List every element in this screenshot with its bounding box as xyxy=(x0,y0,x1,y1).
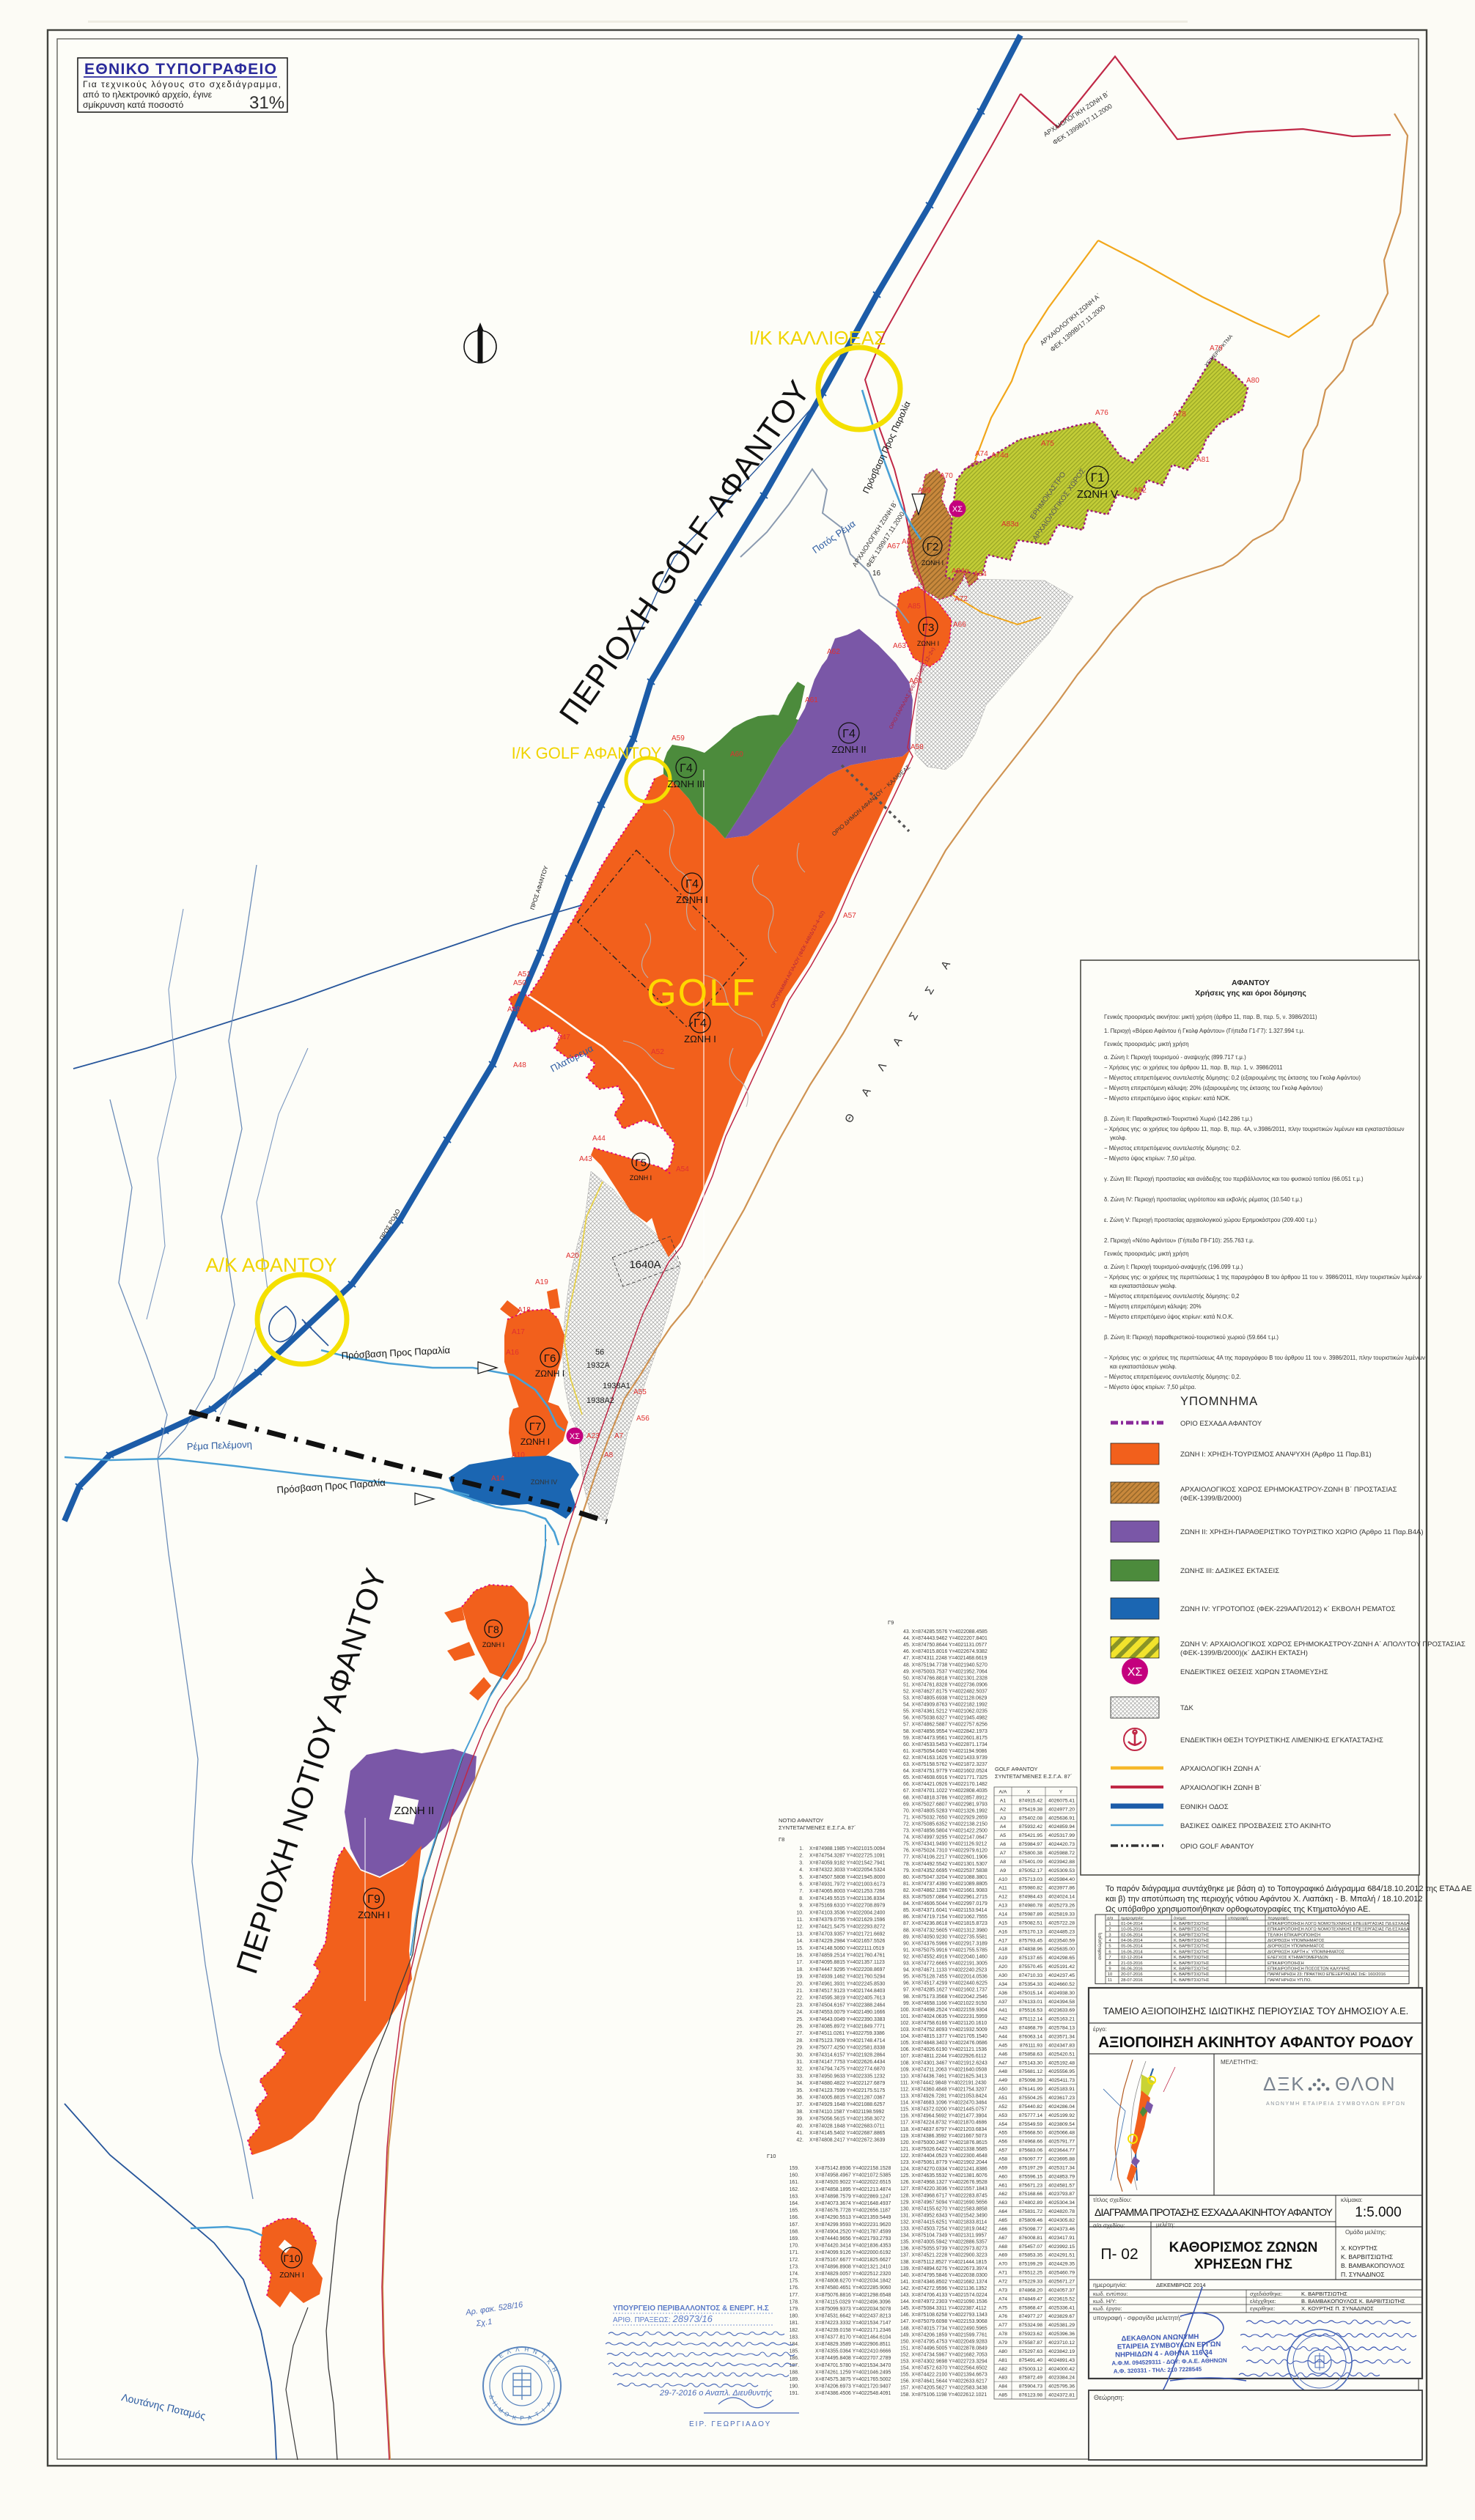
svg-text:ΔΙΟΡΘΩΣΗ ΥΠΟΜΝΗΜΑΤΟΣ: ΔΙΟΡΘΩΣΗ ΥΠΟΜΝΗΜΑΤΟΣ xyxy=(1268,1939,1325,1943)
svg-text:173.: 173. xyxy=(790,2264,799,2269)
svg-text:X=874904.2520 Y=4021787.4599: X=874904.2520 Y=4021787.4599 xyxy=(815,2229,891,2234)
svg-text:112. X=874360.4848 Y=4021754.3: 112. X=874360.4848 Y=4021754.3207 xyxy=(900,2088,987,2093)
svg-text:X=874386.4506 Y=4022548.4091: X=874386.4506 Y=4022548.4091 xyxy=(815,2391,891,2396)
svg-text:2: 2 xyxy=(1108,1928,1111,1932)
svg-text:Α13: Α13 xyxy=(998,1904,1007,1909)
svg-text:X=874958.4967 Y=4021072.5385: X=874958.4967 Y=4021072.5385 xyxy=(815,2173,891,2178)
svg-text:Κ. ΒΑΡΒΙΤΣΙΩΤΗΣ: Κ. ΒΑΡΒΙΤΣΙΩΤΗΣ xyxy=(1174,1945,1210,1949)
svg-text:25.: 25. xyxy=(796,2017,803,2022)
svg-text:ΕΠΙΚΑΙΡΟΠΟΙΗΣΗ ΛΟΓΩ ΝΟΜΟΤΕΧΝΙΚ: ΕΠΙΚΑΙΡΟΠΟΙΗΣΗ ΛΟΓΩ ΝΟΜΟΤΕΧΝΙΚΗΣ ΕΠΕΞΕΡΓ… xyxy=(1268,1928,1409,1932)
svg-text:875170.13: 875170.13 xyxy=(1019,1929,1042,1934)
svg-text:X=874896.8908 Y=4021321.2410: X=874896.8908 Y=4021321.2410 xyxy=(815,2264,891,2269)
svg-text:Α8: Α8 xyxy=(1000,1860,1007,1865)
svg-text:ΣΥΝΤΕΤΑΓΜΕΝΕΣ Ε.Σ.Γ.Α. 87΄: ΣΥΝΤΕΤΑΓΜΕΝΕΣ Ε.Σ.Γ.Α. 87΄ xyxy=(779,1824,856,1831)
svg-text:875987.89: 875987.89 xyxy=(1019,1912,1042,1917)
svg-text:X=874005.8815 Y=4021287.0367: X=874005.8815 Y=4021287.0367 xyxy=(809,2096,886,2101)
svg-text:02-06-2014: 02-06-2014 xyxy=(1121,1933,1143,1937)
svg-text:4023417.91: 4023417.91 xyxy=(1048,2236,1075,2241)
svg-text:γκολφ.: γκολφ. xyxy=(1110,1135,1127,1141)
svg-text:Α52: Α52 xyxy=(651,1048,664,1056)
svg-text:Α20: Α20 xyxy=(566,1252,579,1260)
svg-text:ΖΩΝΗ Ι: ΖΩΝΗ Ι xyxy=(521,1437,550,1447)
svg-text:Α44: Α44 xyxy=(998,2035,1007,2040)
svg-text:876123.98: 876123.98 xyxy=(1019,2393,1042,2398)
svg-text:4024298.65: 4024298.65 xyxy=(1048,1956,1075,1961)
svg-text:X=875167.6677 Y=4021825.6627: X=875167.6677 Y=4021825.6627 xyxy=(815,2258,891,2263)
svg-text:38.: 38. xyxy=(796,2110,803,2115)
svg-text:92. X=874552.4916 Y=4022040.14: 92. X=874552.4916 Y=4022040.1460 xyxy=(903,1955,987,1960)
svg-text:875354.33: 875354.33 xyxy=(1019,1982,1042,1987)
svg-text:Α47: Α47 xyxy=(998,2060,1007,2066)
svg-text:5: 5 xyxy=(1108,1945,1111,1949)
svg-text:Α9: Α9 xyxy=(1000,1868,1007,1874)
svg-text:Α50: Α50 xyxy=(513,979,526,987)
svg-text:Α80: Α80 xyxy=(1246,377,1259,385)
svg-text:β. Ζώνη ΙΙ: Περιοχή παραθεριστ: β. Ζώνη ΙΙ: Περιοχή παραθεριστικού-τουρι… xyxy=(1104,1334,1279,1341)
svg-text:876141.99: 876141.99 xyxy=(1019,2087,1042,2092)
svg-text:ΑΞΙΟΠΟΙΗΣΗ ΑΚΙΝΗΤΟΥ ΑΦΑΝΤΟΥ ΡΟ: ΑΞΙΟΠΟΙΗΣΗ ΑΚΙΝΗΤΟΥ ΑΦΑΝΤΟΥ ΡΟΔΟΥ xyxy=(1098,2034,1413,2051)
svg-text:189.: 189. xyxy=(790,2377,799,2382)
svg-text:138. X=875112.8527 Y=4021444.1: 138. X=875112.8527 Y=4021444.1815 xyxy=(900,2260,987,2265)
svg-text:874802.89: 874802.89 xyxy=(1019,2200,1042,2206)
svg-text:X=874504.6167 Y=4022388.2464: X=874504.6167 Y=4022388.2464 xyxy=(809,2003,886,2008)
svg-text:X=874988.1985 Y=4021015.0094: X=874988.1985 Y=4021015.0094 xyxy=(809,1846,886,1852)
svg-text:Α67: Α67 xyxy=(887,542,900,550)
svg-text:7.: 7. xyxy=(799,1889,803,1894)
svg-text:Α48: Α48 xyxy=(998,2069,1007,2074)
svg-text:ΔΕΚΕΜΒΡΙΟΣ 2014: ΔΕΚΕΜΒΡΙΟΣ 2014 xyxy=(1156,2282,1206,2288)
svg-text:Γ10: Γ10 xyxy=(767,2153,776,2159)
svg-text:176.: 176. xyxy=(790,2285,799,2291)
svg-text:Κ. ΒΑΡΒΙΤΣΙΩΤΗΣ: Κ. ΒΑΡΒΙΤΣΙΩΤΗΣ xyxy=(1301,2291,1347,2297)
svg-text:Α8: Α8 xyxy=(604,1451,614,1459)
svg-text:ΖΩΝΗ Ι: ΖΩΝΗ Ι xyxy=(684,1034,716,1045)
svg-text:Γενικός προορισμός: μικτή χρήσ: Γενικός προορισμός: μικτή χρήση xyxy=(1104,1250,1189,1257)
svg-text:ε. Ζώνη V: Περιοχή προστασίας: ε. Ζώνη V: Περιοχή προστασίας αρχαιολογι… xyxy=(1104,1217,1317,1223)
svg-text:Α56: Α56 xyxy=(998,2140,1007,2145)
svg-text:Α71: Α71 xyxy=(998,2271,1007,2276)
svg-text:Α43: Α43 xyxy=(579,1155,592,1163)
svg-text:Ι/Κ ΚΑΛΛΙΘΕΑΣ: Ι/Κ ΚΑΛΛΙΘΕΑΣ xyxy=(749,327,886,349)
svg-text:Α41: Α41 xyxy=(998,2008,1007,2014)
svg-text:ΕΛΕΓΧΟΣ ΚΤΗΜΑΤΟΜΕΡΙΔΩΝ: ΕΛΕΓΧΟΣ ΚΤΗΜΑΤΟΜΕΡΙΔΩΝ xyxy=(1268,1956,1328,1960)
svg-text:875015.14: 875015.14 xyxy=(1019,1991,1042,1996)
svg-text:ΤΕΛΙΚΗ ΕΠΙΚΑΙΡΟΠΟΙΗΣΗ: ΤΕΛΙΚΗ ΕΠΙΚΑΙΡΟΠΟΙΗΣΗ xyxy=(1268,1933,1320,1937)
svg-text:4024420.73: 4024420.73 xyxy=(1048,1842,1075,1847)
svg-text:X=874115.0329 Y=4022496.3096: X=874115.0329 Y=4022496.3096 xyxy=(815,2299,891,2305)
svg-text:Α51: Α51 xyxy=(998,2096,1007,2101)
svg-text:Α63: Α63 xyxy=(998,2200,1007,2206)
svg-text:X=875169.6310 Y=4022708.8979: X=875169.6310 Y=4022708.8979 xyxy=(809,1904,886,1909)
svg-text:Α83: Α83 xyxy=(998,2376,1007,2381)
svg-text:1.: 1. xyxy=(799,1846,803,1852)
svg-text:ΧΣ: ΧΣ xyxy=(570,1432,580,1441)
svg-text:61. X=875054.6400 Y=4021194.90: 61. X=875054.6400 Y=4021194.9086 xyxy=(903,1749,987,1754)
svg-text:44. X=874443.9462 Y=4022207.84: 44. X=874443.9462 Y=4022207.8401 xyxy=(903,1636,987,1641)
svg-text:4025199.92: 4025199.92 xyxy=(1048,2113,1075,2118)
svg-text:Α15: Α15 xyxy=(998,1920,1007,1926)
svg-text:Γ10: Γ10 xyxy=(283,2252,300,2264)
svg-text:− Χρήσεις γης: οι χρήσεις του: − Χρήσεις γης: οι χρήσεις του άρθρου 11,… xyxy=(1104,1126,1405,1132)
svg-text:4025273.26: 4025273.26 xyxy=(1048,1904,1075,1909)
svg-text:182.: 182. xyxy=(790,2328,799,2333)
svg-text:82. X=874862.1286 Y=4021661.90: 82. X=874862.1286 Y=4021661.9083 xyxy=(903,1888,987,1893)
svg-text:16: 16 xyxy=(872,570,881,578)
svg-text:4025396.36: 4025396.36 xyxy=(1048,2332,1075,2337)
svg-text:X=874059.9182 Y=4021542.7941: X=874059.9182 Y=4021542.7941 xyxy=(809,1860,886,1865)
svg-text:4023992.15: 4023992.15 xyxy=(1048,2244,1075,2250)
svg-text:83. X=875057.0864 Y=4022961.27: 83. X=875057.0864 Y=4022961.2715 xyxy=(903,1895,987,1900)
svg-text:1938Α2: 1938Α2 xyxy=(586,1396,614,1405)
svg-text:188.: 188. xyxy=(790,2370,799,2375)
svg-text:155. X=874422.2100 Y=4021394.6: 155. X=874422.2100 Y=4021394.6673 xyxy=(900,2373,987,2378)
svg-text:4024891.43: 4024891.43 xyxy=(1048,2358,1075,2363)
svg-text:Α/Κ ΑΦΑΝΤΟΥ: Α/Κ ΑΦΑΝΤΟΥ xyxy=(205,1254,336,1276)
svg-text:ΑΝΩΝΥΜΗ ΕΤΑΙΡΕΙΑ ΣΥΜΒΟΥΛΩΝ: ΑΝΩΝΥΜΗ ΕΤΑΙΡΕΙΑ ΣΥΜΒΟΥΛΩΝ ΕΡΓΩΝ xyxy=(1266,2101,1406,2107)
svg-text:75. X=874341.9490 Y=4021126.92: 75. X=874341.9490 Y=4021126.9212 xyxy=(903,1842,987,1847)
svg-text:ελέγχθηκε:: ελέγχθηκε: xyxy=(1250,2298,1276,2305)
svg-text:874710.33: 874710.33 xyxy=(1019,1973,1042,1978)
svg-text:50. X=874766.8818 Y=4021301.23: 50. X=874766.8818 Y=4021301.2328 xyxy=(903,1676,987,1681)
svg-text:15.: 15. xyxy=(796,1946,803,1951)
svg-text:174.: 174. xyxy=(790,2272,799,2277)
svg-text:Κ. ΒΑΡΒΙΤΣΙΩΤΗΣ: Κ. ΒΑΡΒΙΤΣΙΩΤΗΣ xyxy=(1174,1967,1210,1972)
svg-text:Α78: Α78 xyxy=(998,2332,1007,2337)
svg-text:ΖΩΝΗ ΙV: ΖΩΝΗ ΙV xyxy=(531,1478,557,1486)
svg-text:7: 7 xyxy=(1108,1956,1111,1960)
svg-text:Α54: Α54 xyxy=(676,1165,689,1174)
svg-text:Κ. ΒΑΡΒΙΤΣΙΩΤΗΣ: Κ. ΒΑΡΒΙΤΣΙΩΤΗΣ xyxy=(1174,1922,1210,1926)
svg-text:115. X=874372.0200 Y=4021445.0: 115. X=874372.0200 Y=4021445.0757 xyxy=(900,2107,987,2112)
svg-text:108. X=874301.3467 Y=4021912.6: 108. X=874301.3467 Y=4021912.6243 xyxy=(900,2060,987,2066)
svg-text:ΖΩΝΗ Ι: ΖΩΝΗ Ι xyxy=(358,1909,390,1920)
svg-text:(ΦΕΚ-1399/Β/2000)(κ΄ ΔΑΣΙΚΗ ΕΚ: (ΦΕΚ-1399/Β/2000)(κ΄ ΔΑΣΙΚΗ ΕΚΤΑΣΗ) xyxy=(1180,1649,1308,1657)
svg-text:α. Ζώνη Ι: Περιοχή τουρισμού-α: α. Ζώνη Ι: Περιοχή τουρισμού-αναψυχής (1… xyxy=(1104,1264,1243,1270)
svg-text:167.: 167. xyxy=(790,2222,799,2228)
svg-text:Α52: Α52 xyxy=(998,2104,1007,2110)
svg-text:111. X=874442.9848 Y=4022191.2: 111. X=874442.9848 Y=4022191.2430 xyxy=(900,2080,987,2085)
svg-text:29.: 29. xyxy=(796,2046,803,2051)
svg-text:4023384.24: 4023384.24 xyxy=(1048,2376,1075,2381)
svg-text:4025183.91: 4025183.91 xyxy=(1048,2087,1075,2092)
svg-text:875793.45: 875793.45 xyxy=(1019,1938,1042,1943)
svg-text:4025411.73: 4025411.73 xyxy=(1049,2078,1075,2083)
svg-text:4024372.81: 4024372.81 xyxy=(1048,2393,1075,2398)
svg-text:78. X=874492.5542 Y=4021301.53: 78. X=874492.5542 Y=4021301.5307 xyxy=(903,1862,987,1867)
svg-text:Γ5: Γ5 xyxy=(635,1157,647,1168)
svg-text:190.: 190. xyxy=(790,2384,799,2390)
svg-text:Ρέμα Πελέμονη: Ρέμα Πελέμονη xyxy=(187,1439,252,1452)
svg-text:Γ7: Γ7 xyxy=(529,1421,542,1433)
svg-text:2.: 2. xyxy=(799,1854,803,1859)
svg-text:71. X=875032.7650 Y=4022929.26: 71. X=875032.7650 Y=4022929.2659 xyxy=(903,1815,987,1820)
svg-text:4025795.36: 4025795.36 xyxy=(1048,2384,1075,2390)
svg-text:Α1: Α1 xyxy=(1000,1798,1007,1803)
svg-text:X=874073.3674 Y=4021648.4937: X=874073.3674 Y=4021648.4937 xyxy=(815,2201,891,2206)
svg-text:875549.59: 875549.59 xyxy=(1019,2122,1042,2127)
svg-text:X=874206.6973 Y=4021720.9407: X=874206.6973 Y=4021720.9407 xyxy=(815,2384,891,2390)
svg-text:1. Περιοχή «Βόρειο Αφάντου ή Γ: 1. Περιοχή «Βόρειο Αφάντου ή Γκολφ Αφάντ… xyxy=(1104,1028,1304,1034)
svg-text:Α65: Α65 xyxy=(998,2218,1007,2223)
svg-text:X=874314.6157 Y=4021928.2864: X=874314.6157 Y=4021928.2864 xyxy=(809,2052,886,2057)
svg-text:Α74α: Α74α xyxy=(991,452,1009,460)
svg-text:55. X=874361.5212 Y=4021062.02: 55. X=874361.5212 Y=4021062.0235 xyxy=(903,1709,987,1714)
svg-text:142. X=874272.9596 Y=4021136.1: 142. X=874272.9596 Y=4021136.1352 xyxy=(900,2286,987,2291)
svg-text:α. Ζώνη Ι: Περιοχή τουρισμού -: α. Ζώνη Ι: Περιοχή τουρισμού - αναψυχής … xyxy=(1104,1054,1246,1061)
svg-text:Α12: Α12 xyxy=(998,1895,1007,1900)
svg-text:110. X=874436.7461 Y=4021625.3: 110. X=874436.7461 Y=4021625.3413 xyxy=(900,2074,987,2079)
svg-text:64. X=874751.9779 Y=4021602.05: 64. X=874751.9779 Y=4021602.0524 xyxy=(903,1769,987,1774)
svg-text:876008.81: 876008.81 xyxy=(1019,2236,1042,2241)
svg-text:154. X=874572.6370 Y=4022564.6: 154. X=874572.6370 Y=4022564.6502 xyxy=(900,2366,987,2371)
svg-text:X=874531.6642 Y=4022437.8213: X=874531.6642 Y=4022437.8213 xyxy=(815,2314,891,2319)
svg-text:114. X=874683.1096 Y=4022470.3: 114. X=874683.1096 Y=4022470.3464 xyxy=(900,2101,987,2106)
svg-text:137. X=874521.2228 Y=4022900.3: 137. X=874521.2228 Y=4022900.3223 xyxy=(900,2253,987,2258)
svg-text:4023644.77: 4023644.77 xyxy=(1048,2148,1075,2154)
svg-text:875137.65: 875137.65 xyxy=(1019,1956,1042,1961)
svg-text:874849.47: 874849.47 xyxy=(1019,2296,1042,2302)
svg-text:1640Α: 1640Α xyxy=(629,1259,661,1271)
svg-text:874915.42: 874915.42 xyxy=(1019,1798,1042,1803)
svg-text:68. X=874818.3786 Y=4022857.89: 68. X=874818.3786 Y=4022857.8912 xyxy=(903,1795,987,1800)
svg-text:124. X=874270.0334 Y=4021241.8: 124. X=874270.0334 Y=4021241.8386 xyxy=(900,2167,987,2172)
svg-text:118. X=874837.6797 Y=4021203.6: 118. X=874837.6797 Y=4021203.6834 xyxy=(900,2127,987,2132)
svg-text:4024000.42: 4024000.42 xyxy=(1048,2367,1075,2372)
svg-text:875003.12: 875003.12 xyxy=(1019,2367,1042,2372)
svg-text:γ. Ζώνη ΙΙΙ: Περιοχή προστασία: γ. Ζώνη ΙΙΙ: Περιοχή προστασίας και ανάδ… xyxy=(1104,1176,1364,1182)
svg-text:Α72: Α72 xyxy=(998,2280,1007,2285)
svg-text:4024286.04: 4024286.04 xyxy=(1048,2104,1075,2110)
svg-text:ΜΕΛΕΤΗΤΗΣ:: ΜΕΛΕΤΗΤΗΣ: xyxy=(1221,2059,1258,2066)
svg-text:Β. ΒΑΜΒΑΚΟΠΟΥΛΟΣ Κ. ΒΑΡΒΙΤΣΙΩ: Β. ΒΑΜΒΑΚΟΠΟΥΛΟΣ Κ. ΒΑΡΒΙΤΣΙΩΤΗΣ xyxy=(1301,2298,1405,2305)
svg-text:ΚΑΘΟΡΙΣΜΟΣ ΖΩΝΩΝ: ΚΑΘΟΡΙΣΜΟΣ ΖΩΝΩΝ xyxy=(1169,2240,1318,2255)
svg-text:Α6: Α6 xyxy=(1000,1842,1007,1847)
svg-text:X=874829.3589 Y=4022906.8511: X=874829.3589 Y=4022906.8511 xyxy=(815,2342,891,2347)
svg-text:4024305.82: 4024305.82 xyxy=(1048,2218,1075,2223)
svg-text:Γ4: Γ4 xyxy=(694,1017,707,1030)
svg-text:Α10: Α10 xyxy=(998,1877,1007,1882)
svg-text:ΠΑΡΑΤΗΡΗΣΗ ΥΠ.ΠΟ.: ΠΑΡΑΤΗΡΗΣΗ ΥΠ.ΠΟ. xyxy=(1268,1978,1312,1983)
svg-text:ΒΑΣΙΚΕΣ ΟΔΙΚΕΣ ΠΡΟΣΒΑΣΕΙΣ ΣΤΟ: ΒΑΣΙΚΕΣ ΟΔΙΚΕΣ ΠΡΟΣΒΑΣΕΙΣ ΣΤΟ ΑΚΙΝΗΤΟ xyxy=(1180,1822,1331,1830)
svg-text:Γ8: Γ8 xyxy=(488,1624,499,1635)
svg-text:Α84: Α84 xyxy=(998,2384,1007,2390)
svg-text:Α83α: Α83α xyxy=(1001,520,1019,528)
svg-text:22.: 22. xyxy=(796,1996,803,2001)
svg-text:− Χρήσεις γης: οι χρήσεις του: − Χρήσεις γης: οι χρήσεις του άρθρου 11,… xyxy=(1104,1064,1283,1071)
svg-text:Α55: Α55 xyxy=(633,1388,647,1396)
svg-text:28.: 28. xyxy=(796,2038,803,2044)
svg-text:4023571.34: 4023571.34 xyxy=(1048,2035,1075,2040)
svg-text:8.: 8. xyxy=(799,1896,803,1901)
svg-text:20-07-2016: 20-07-2016 xyxy=(1121,1972,1143,1977)
svg-text:και εγκαταστάσεων γκολφ.: και εγκαταστάσεων γκολφ. xyxy=(1110,1363,1177,1370)
svg-text:5.: 5. xyxy=(799,1875,803,1880)
svg-text:X=874355.0364 Y=4022410.6666: X=874355.0364 Y=4022410.6666 xyxy=(815,2349,891,2354)
svg-text:11.: 11. xyxy=(797,1917,803,1923)
svg-text:− Μέγιστο ύψος κτιρίων: 7,50: − Μέγιστο ύψος κτιρίων: 7,50 μέτρα. xyxy=(1104,1155,1196,1162)
svg-text:Α81: Α81 xyxy=(1196,456,1210,464)
svg-text:31%: 31% xyxy=(249,93,284,113)
svg-text:4025317.99: 4025317.99 xyxy=(1048,1833,1075,1838)
svg-text:X=874929.1648 Y=4021088.6257: X=874929.1648 Y=4021088.6257 xyxy=(809,2102,886,2107)
svg-text:875671.23: 875671.23 xyxy=(1019,2183,1042,2188)
svg-text:− Μέγιστος επιτρεπόμενος συντ: − Μέγιστος επιτρεπόμενος συντελεστής δόμ… xyxy=(1104,1293,1239,1300)
svg-text:Α18: Α18 xyxy=(998,1947,1007,1952)
svg-text:Α59: Α59 xyxy=(672,734,685,743)
svg-text:6: 6 xyxy=(1108,1950,1111,1954)
svg-text:62. X=874163.1626 Y=4021433.97: 62. X=874163.1626 Y=4021433.9739 xyxy=(903,1755,987,1761)
svg-text:8: 8 xyxy=(1108,1961,1111,1966)
svg-text:52. X=874627.8175 Y=4022482.50: 52. X=874627.8175 Y=4022482.5037 xyxy=(903,1690,987,1695)
svg-text:28-07-2016: 28-07-2016 xyxy=(1121,1978,1143,1983)
svg-text:875401.09: 875401.09 xyxy=(1019,1860,1042,1865)
svg-text:171.: 171. xyxy=(790,2250,799,2255)
svg-text:ΕΝΔΕΙΚΤΙΚΕΣ ΘΕΣΕΙΣ ΧΩΡΩΝ ΣΤΑΘΜ: ΕΝΔΕΙΚΤΙΚΕΣ ΘΕΣΕΙΣ ΧΩΡΩΝ ΣΤΑΘΜΕΥΣΗΣ xyxy=(1180,1668,1328,1676)
svg-text:06-06-2016: 06-06-2016 xyxy=(1121,1967,1143,1972)
svg-text:4024660.52: 4024660.52 xyxy=(1048,1982,1075,1987)
svg-text:β. Ζώνη ΙΙ: Παραθεριστικό-Τουρ: β. Ζώνη ΙΙ: Παραθεριστικό-Τουριστικό Χωρ… xyxy=(1104,1116,1253,1122)
svg-text:172.: 172. xyxy=(790,2258,799,2263)
svg-text:Α51: Α51 xyxy=(518,970,531,979)
svg-text:ΥΠΟΜΝΗΜΑ: ΥΠΟΜΝΗΜΑ xyxy=(1180,1395,1258,1408)
svg-text:4024373.46: 4024373.46 xyxy=(1048,2227,1075,2232)
svg-text:4025336.41: 4025336.41 xyxy=(1048,2305,1075,2310)
svg-text:875858.63: 875858.63 xyxy=(1019,2052,1042,2057)
svg-text:99. X=874658.1166 Y=4021022.91: 99. X=874658.1166 Y=4021022.9150 xyxy=(903,2001,987,2006)
svg-text:Α62: Α62 xyxy=(827,648,840,656)
svg-text:Α63: Α63 xyxy=(893,642,906,650)
svg-text:874868.20: 874868.20 xyxy=(1019,2288,1042,2293)
svg-text:875853.35: 875853.35 xyxy=(1019,2253,1042,2258)
svg-text:169.: 169. xyxy=(790,2236,799,2241)
svg-text:69. X=875027.6807 Y=4022981.97: 69. X=875027.6807 Y=4022981.9793 xyxy=(903,1802,987,1807)
svg-text:4025819.33: 4025819.33 xyxy=(1048,1912,1075,1917)
svg-text:20.: 20. xyxy=(796,1981,803,1986)
svg-text:X=874898.7579 Y=4022869.1247: X=874898.7579 Y=4022869.1247 xyxy=(815,2194,891,2199)
svg-text:ΔΙΑΓΡΑΜΜΑ ΠΡΟΤΑΣΗΣ ΕΣΧΑΔΑ ΑΚΙΝ: ΔΙΑΓΡΑΜΜΑ ΠΡΟΤΑΣΗΣ ΕΣΧΑΔΑ ΑΚΙΝΗΤΟΥ ΑΦΑΝΤ… xyxy=(1095,2206,1334,2218)
svg-text:Υ: Υ xyxy=(1059,1790,1063,1795)
svg-text:94. X=874671.1133 Y=4022240.25: 94. X=874671.1133 Y=4022240.2523 xyxy=(903,1968,987,1973)
svg-text:Α66: Α66 xyxy=(953,621,966,629)
svg-text:135. X=874005.5942 Y=4022886.5: 135. X=874005.5942 Y=4022886.5357 xyxy=(900,2240,987,2245)
svg-text:Α19: Α19 xyxy=(998,1956,1007,1961)
svg-text:875872.49: 875872.49 xyxy=(1019,2376,1042,2381)
svg-text:ΑΡΧΑΙΟΛΟΓΙΚΟΣ ΧΩΡΟΣ ΕΡΗΜΟΚΑΣΤΡ: ΑΡΧΑΙΟΛΟΓΙΚΟΣ ΧΩΡΟΣ ΕΡΗΜΟΚΑΣΤΡΟΥ-ΖΩΝΗ Β΄… xyxy=(1180,1486,1397,1494)
svg-text:875904.73: 875904.73 xyxy=(1019,2384,1042,2390)
svg-text:X=874931.7972 Y=4021003.6173: X=874931.7972 Y=4021003.6173 xyxy=(809,1882,886,1887)
svg-text:ΖΩΝΗΣ ΙΙΙ: ΔΑΣΙΚΕΣ ΕΚΤΑΣΕΙΣ: ΖΩΝΗΣ ΙΙΙ: ΔΑΣΙΚΕΣ ΕΚΤΑΣΕΙΣ xyxy=(1180,1567,1279,1575)
svg-text:874868.79: 874868.79 xyxy=(1019,2026,1042,2031)
svg-text:875596.15: 875596.15 xyxy=(1019,2174,1042,2179)
svg-text:Π. ΣΥΝΑΔΙΝΟΣ: Π. ΣΥΝΑΔΙΝΟΣ xyxy=(1341,2271,1385,2278)
svg-text:Α60: Α60 xyxy=(998,2174,1007,2179)
svg-text:102. X=874758.6166 Y=4021120.1: 102. X=874758.6166 Y=4021120.1610 xyxy=(900,2021,987,2026)
svg-text:143. X=874706.4133 Y=4021574.0: 143. X=874706.4133 Y=4021574.0224 xyxy=(900,2293,987,2298)
svg-text:Χ. ΚΟΥΡΤΗΣ: Χ. ΚΟΥΡΤΗΣ xyxy=(1341,2244,1377,2252)
svg-text:X=874880.4822 Y=4022127.6879: X=874880.4822 Y=4022127.6879 xyxy=(809,2081,886,2086)
svg-text:X=874939.1462 Y=4021760.5294: X=874939.1462 Y=4021760.5294 xyxy=(809,1975,886,1980)
svg-text:60. X=874533.5453 Y=4022871.17: 60. X=874533.5453 Y=4022871.1734 xyxy=(903,1742,987,1747)
svg-text:X=874858.1895 Y=4021213.4874: X=874858.1895 Y=4021213.4874 xyxy=(815,2187,891,2192)
svg-text:875713.03: 875713.03 xyxy=(1019,1877,1042,1882)
svg-text:και β) την αποτύπωση της περιο: και β) την αποτύπωση της περιοχής νότιου… xyxy=(1106,1895,1422,1904)
svg-text:4023617.23: 4023617.23 xyxy=(1048,2096,1075,2101)
svg-text:Α37: Α37 xyxy=(998,2000,1007,2005)
svg-text:875419.38: 875419.38 xyxy=(1019,1807,1042,1812)
svg-text:875868.47: 875868.47 xyxy=(1019,2305,1042,2310)
svg-text:ΧΣ: ΧΣ xyxy=(1128,1666,1143,1679)
svg-text:X=874421.5475 Y=4022293.8272: X=874421.5475 Y=4022293.8272 xyxy=(809,1925,886,1930)
svg-text:− Μέγιστο επιτρεπόμενο ύψος κ: − Μέγιστο επιτρεπόμενο ύψος κτιρίων: κατ… xyxy=(1104,1095,1231,1102)
svg-text:10: 10 xyxy=(1108,1972,1112,1977)
svg-text:144. X=874972.2303 Y=4021090.1: 144. X=874972.2303 Y=4021090.1536 xyxy=(900,2299,987,2305)
svg-text:4025309.53: 4025309.53 xyxy=(1048,1868,1075,1874)
svg-text:X=874595.3819 Y=4022405.7613: X=874595.3819 Y=4022405.7613 xyxy=(809,1996,886,2001)
svg-text:170.: 170. xyxy=(790,2244,799,2249)
svg-text:X=874085.8972 Y=4021849.7771: X=874085.8972 Y=4021849.7771 xyxy=(809,2025,886,2030)
svg-text:876133.01: 876133.01 xyxy=(1019,2000,1042,2005)
svg-text:Α74: Α74 xyxy=(975,450,988,458)
svg-text:34.: 34. xyxy=(796,2081,803,2086)
svg-text:Α50: Α50 xyxy=(998,2087,1007,2092)
svg-text:Α81: Α81 xyxy=(998,2358,1007,2363)
svg-text:59. X=874473.9561 Y=4022601.81: 59. X=874473.9561 Y=4022601.8175 xyxy=(903,1736,987,1741)
svg-text:875440.82: 875440.82 xyxy=(1019,2104,1042,2110)
svg-text:66. X=874421.0926 Y=4022170.14: 66. X=874421.0926 Y=4022170.1482 xyxy=(903,1782,987,1787)
svg-text:162.: 162. xyxy=(790,2187,799,2192)
svg-text:875199.29: 875199.29 xyxy=(1019,2262,1042,2267)
svg-text:180.: 180. xyxy=(790,2314,799,2319)
svg-text:Α30: Α30 xyxy=(998,1973,1007,1978)
svg-text:70. X=874805.5283 Y=4021326.19: 70. X=874805.5283 Y=4021326.1992 xyxy=(903,1808,987,1813)
svg-text:153. X=874302.9698 Y=4022723.3: 153. X=874302.9698 Y=4022723.3294 xyxy=(900,2359,987,2365)
svg-text:01-04-2014: 01-04-2014 xyxy=(1121,1922,1143,1926)
svg-text:875831.72: 875831.72 xyxy=(1019,2209,1042,2214)
svg-text:147. X=875079.6098 Y=4022153.9: 147. X=875079.6098 Y=4022153.9068 xyxy=(900,2319,987,2324)
svg-text:X=874095.8815 Y=4021357.1123: X=874095.8815 Y=4021357.1123 xyxy=(809,1960,885,1965)
svg-text:Α45: Α45 xyxy=(998,2043,1007,2048)
svg-text:40.: 40. xyxy=(796,2123,803,2129)
svg-text:X=874028.1848 Y=4022683.0711: X=874028.1848 Y=4022683.0711 xyxy=(809,2123,885,2129)
svg-text:Α10: Α10 xyxy=(512,1451,525,1459)
svg-text:Κ. ΒΑΡΒΙΤΣΙΩΤΗΣ: Κ. ΒΑΡΒΙΤΣΙΩΤΗΣ xyxy=(1174,1956,1210,1960)
svg-text:43. X=874285.5576 Y=4022088.45: 43. X=874285.5576 Y=4022088.4585 xyxy=(903,1629,987,1635)
svg-text:151. X=874496.5005 Y=4022878.0: 151. X=874496.5005 Y=4022878.0849 xyxy=(900,2346,987,2351)
svg-text:121. X=875026.6422 Y=4021338.5: 121. X=875026.6422 Y=4021338.5685 xyxy=(900,2147,987,2152)
svg-text:Α44: Α44 xyxy=(592,1135,606,1143)
svg-text:X=874229.2984 Y=4021657.5526: X=874229.2984 Y=4021657.5526 xyxy=(809,1939,886,1944)
svg-text:X=875099.9373 Y=4022034.5078: X=875099.9373 Y=4022034.5078 xyxy=(815,2307,891,2312)
svg-text:Α77: Α77 xyxy=(998,2323,1007,2328)
svg-text:9.: 9. xyxy=(799,1904,803,1909)
svg-text:93. X=874772.6665 Y=4022191.30: 93. X=874772.6665 Y=4022191.3005 xyxy=(903,1961,987,1967)
svg-text:4026075.41: 4026075.41 xyxy=(1048,1798,1075,1803)
svg-text:ΔΙΟΡΘΩΣΗ ΧΑΡΤΗ κ΄ ΥΠΟΜΝΗΜΑΤΟΣ: ΔΙΟΡΘΩΣΗ ΧΑΡΤΗ κ΄ ΥΠΟΜΝΗΜΑΤΟΣ xyxy=(1268,1950,1345,1954)
svg-text:10-05-2014: 10-05-2014 xyxy=(1121,1928,1143,1932)
svg-text:4025556.95: 4025556.95 xyxy=(1048,2069,1075,2074)
svg-text:4024237.45: 4024237.45 xyxy=(1048,1973,1075,1978)
svg-text:16.: 16. xyxy=(796,1953,803,1959)
svg-text:Α73: Α73 xyxy=(998,2288,1007,2293)
svg-text:Α46: Α46 xyxy=(998,2052,1007,2057)
svg-text:875809.46: 875809.46 xyxy=(1019,2218,1042,2223)
svg-text:− Χρήσεις γης: οι χρήσεις της: − Χρήσεις γης: οι χρήσεις της περιπτώσεω… xyxy=(1104,1274,1421,1281)
svg-text:96. X=874517.4299 Y=4022440.62: 96. X=874517.4299 Y=4022440.6225 xyxy=(903,1981,987,1986)
svg-text:X=874829.0057 Y=4022512.2320: X=874829.0057 Y=4022512.2320 xyxy=(815,2272,891,2277)
svg-text:81. X=874737.4390 Y=4021089.88: 81. X=874737.4390 Y=4021089.8805 xyxy=(903,1882,987,1887)
svg-text:127. X=874220.3036 Y=4021557.1: 127. X=874220.3036 Y=4021557.1843 xyxy=(900,2186,987,2192)
svg-text:δ. Ζώνη ΙV: Περιοχή προστασίας: δ. Ζώνη ΙV: Περιοχή προστασίας υγρότοπου… xyxy=(1104,1196,1303,1203)
